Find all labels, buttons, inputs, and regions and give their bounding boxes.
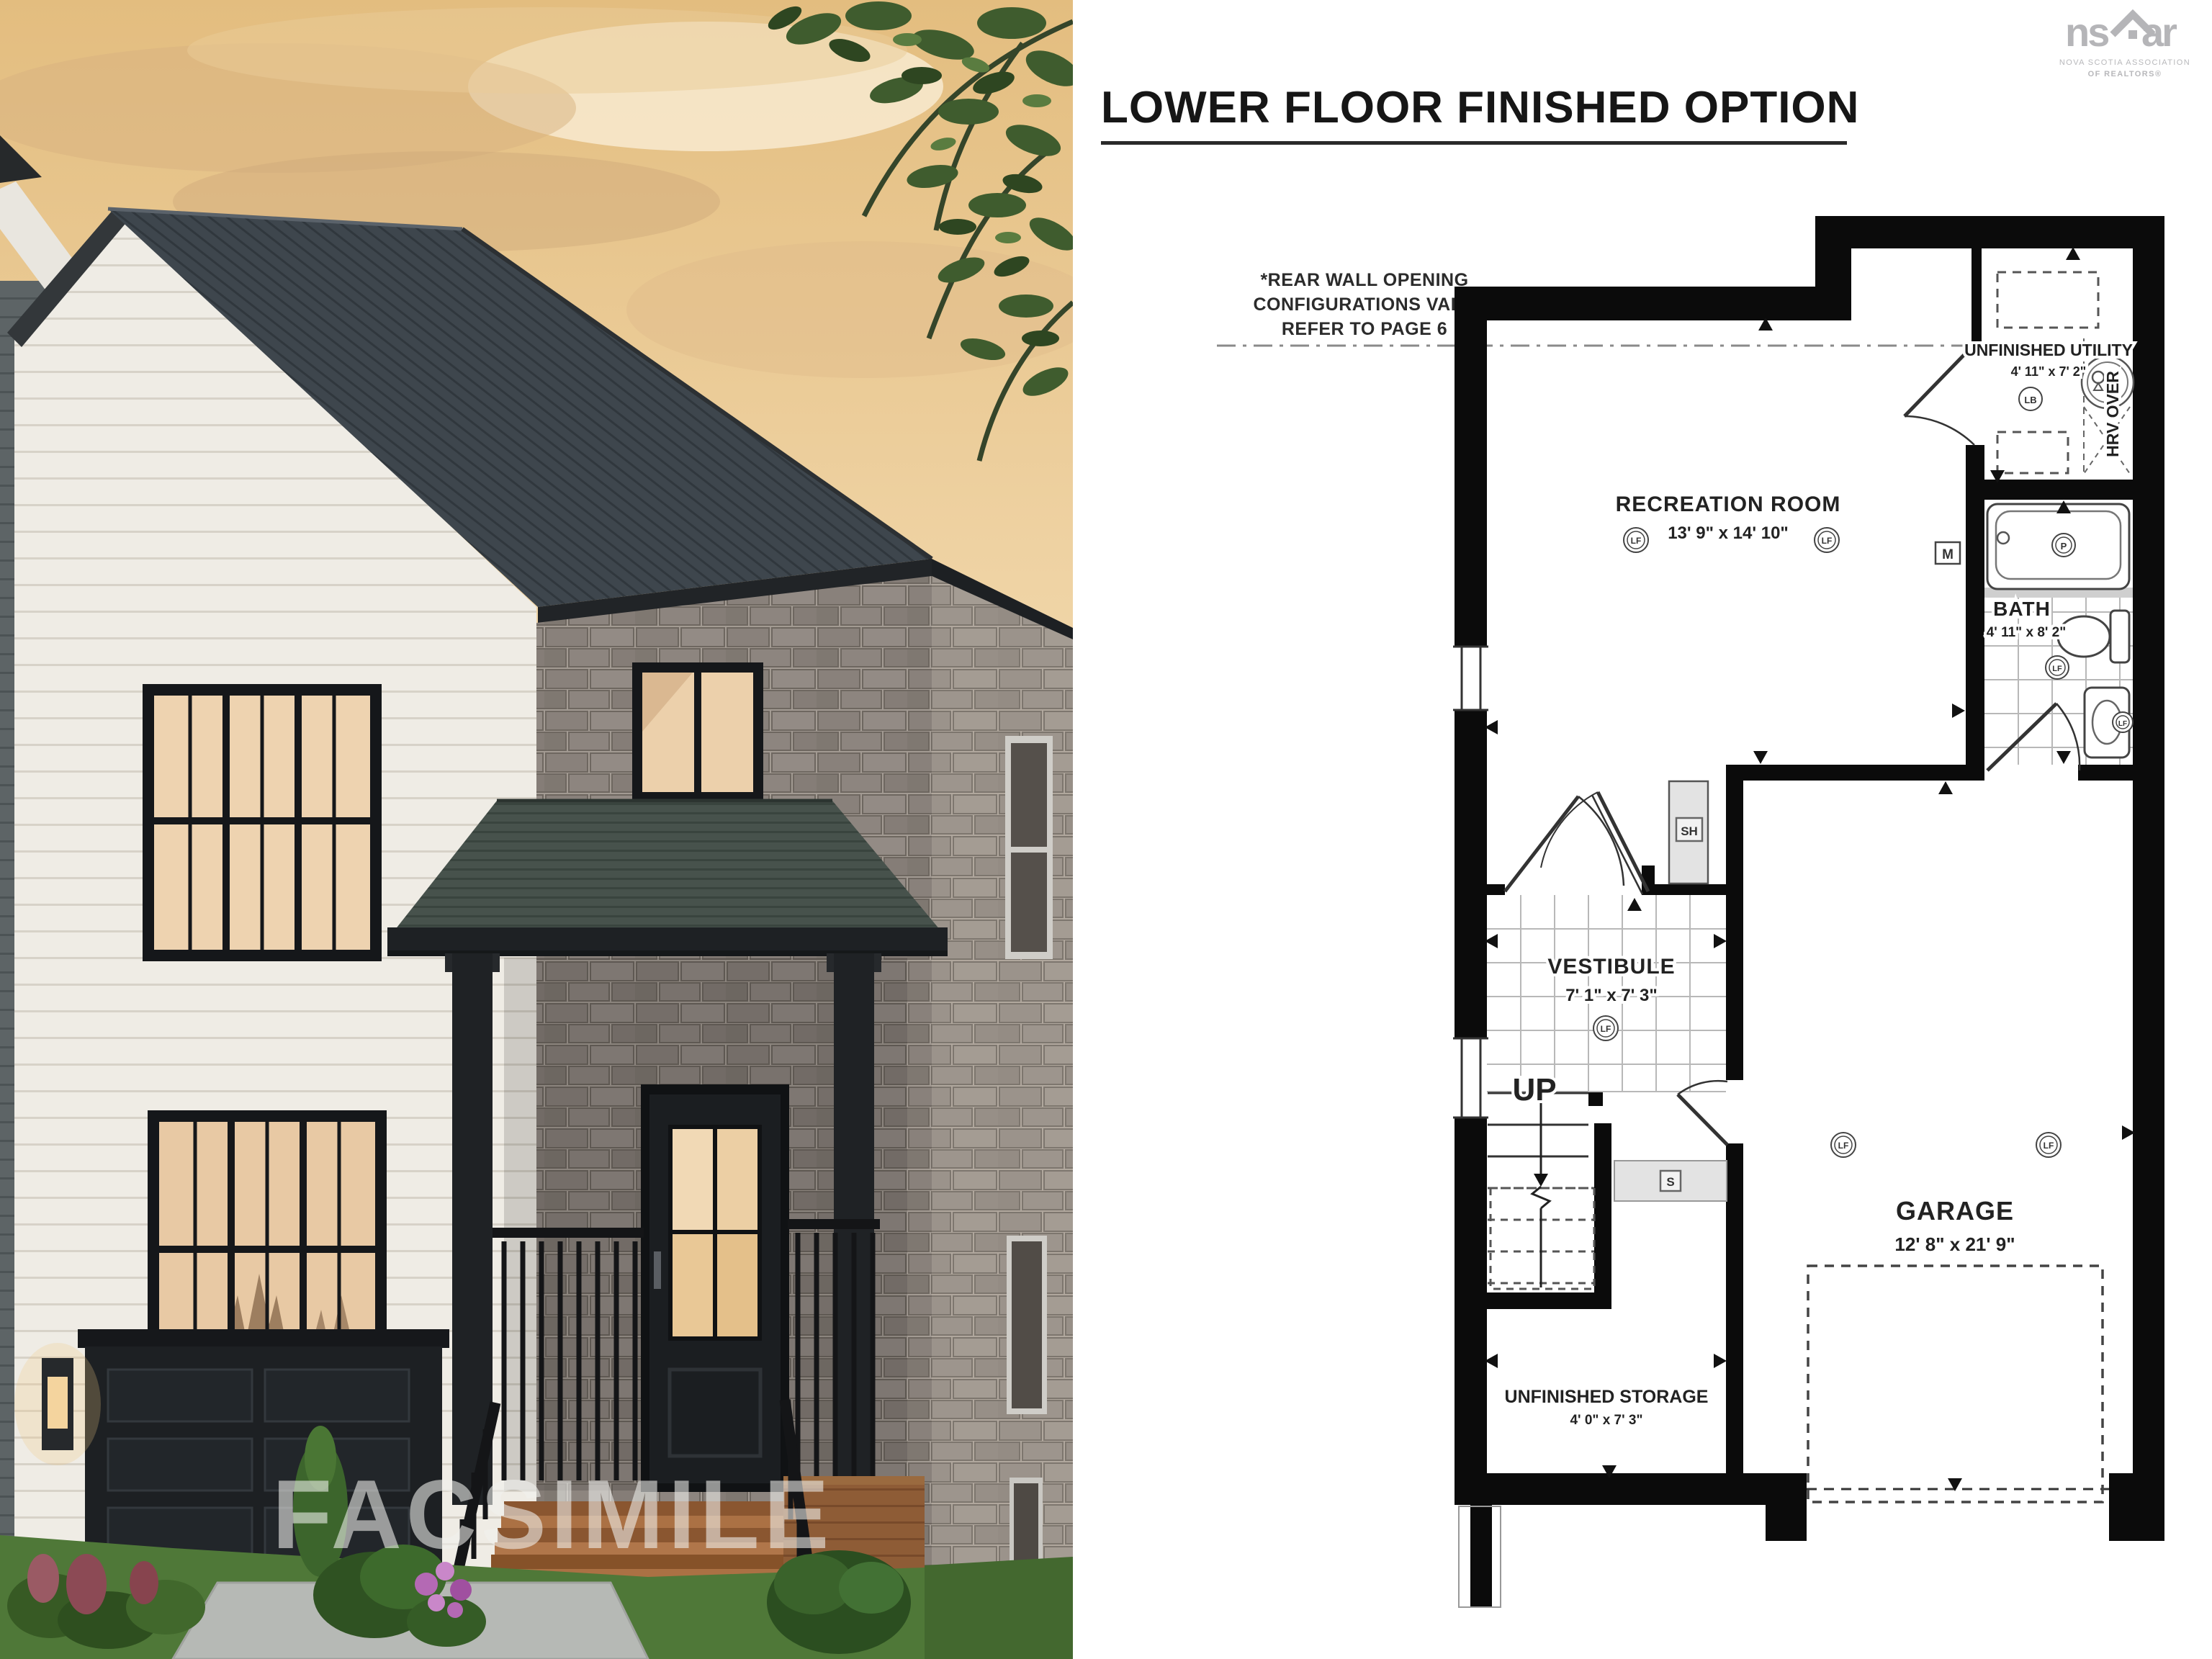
storage-label: UNFINISHED STORAGE — [1505, 1387, 1709, 1407]
utility-label: UNFINISHED UTILITY — [1964, 341, 2133, 359]
rec-room-door-left — [1505, 796, 1578, 891]
garage-entry-door — [1678, 1094, 1727, 1145]
svg-text:LF: LF — [1601, 1024, 1611, 1034]
svg-text:LF: LF — [1838, 1141, 1849, 1151]
doors — [1505, 344, 2080, 1145]
wall-sconce — [14, 1343, 101, 1465]
svg-text:P: P — [2061, 541, 2067, 552]
stairs — [1488, 1093, 1594, 1289]
garage-parking-outline — [1808, 1266, 2103, 1502]
tub-p-symbol: P — [2052, 534, 2075, 557]
house-render: FACSIMILE — [0, 0, 1073, 1659]
sh-shelf-label: SH — [1681, 824, 1698, 838]
svg-text:M: M — [1942, 547, 1954, 562]
svg-text:LF: LF — [1631, 536, 1642, 546]
entry-door — [641, 1084, 789, 1492]
utility-dims: 4' 11" x 7' 2" — [2011, 364, 2087, 379]
svg-text:LF: LF — [2118, 720, 2127, 728]
garage-label: GARAGE — [1896, 1196, 2014, 1226]
listing-sheet: FACSIMILE LOWER FLOOR FINISHED OPTION *R… — [0, 0, 2212, 1659]
facsimile-watermark: FACSIMILE — [272, 1460, 833, 1569]
hrv-label: HRV OVER — [2103, 371, 2122, 457]
vestibule-label: VESTIBULE — [1547, 955, 1675, 979]
svg-text:LB: LB — [2024, 395, 2036, 405]
recreation-room-dims: 13' 9" x 14' 10" — [1668, 523, 1789, 543]
svg-text:LF: LF — [2052, 665, 2062, 673]
floor-plan: LF LF LF LF LF LF LF LB — [1073, 0, 2212, 1659]
svg-text:LF: LF — [1822, 536, 1833, 546]
meter-box: M — [1935, 542, 1960, 564]
house-photo: FACSIMILE — [0, 0, 1073, 1659]
door-handle — [654, 1251, 661, 1289]
light-fixture-symbol: LF — [1624, 528, 1648, 552]
garage-dims: 12' 8" x 21' 9" — [1894, 1233, 2015, 1255]
bath-label: BATH — [1993, 598, 2051, 620]
siding-upper-window — [143, 684, 382, 961]
vestibule-dims: 7' 1" x 7' 3" — [1565, 986, 1658, 1005]
up-label: UP — [1512, 1072, 1556, 1107]
floor-plan-panel: LOWER FLOOR FINISHED OPTION *REAR WALL O… — [1073, 0, 2212, 1659]
lb-symbol: LB — [2019, 387, 2042, 410]
s-shelf-label: S — [1666, 1175, 1674, 1189]
recreation-room-label: RECREATION ROOM — [1616, 493, 1841, 516]
bath-dims: 4' 11" x 8' 2" — [1987, 625, 2067, 640]
floor-tiles — [1487, 598, 2133, 1092]
storage-dims: 4' 0" x 7' 3" — [1570, 1413, 1642, 1428]
svg-text:LF: LF — [2044, 1141, 2054, 1151]
